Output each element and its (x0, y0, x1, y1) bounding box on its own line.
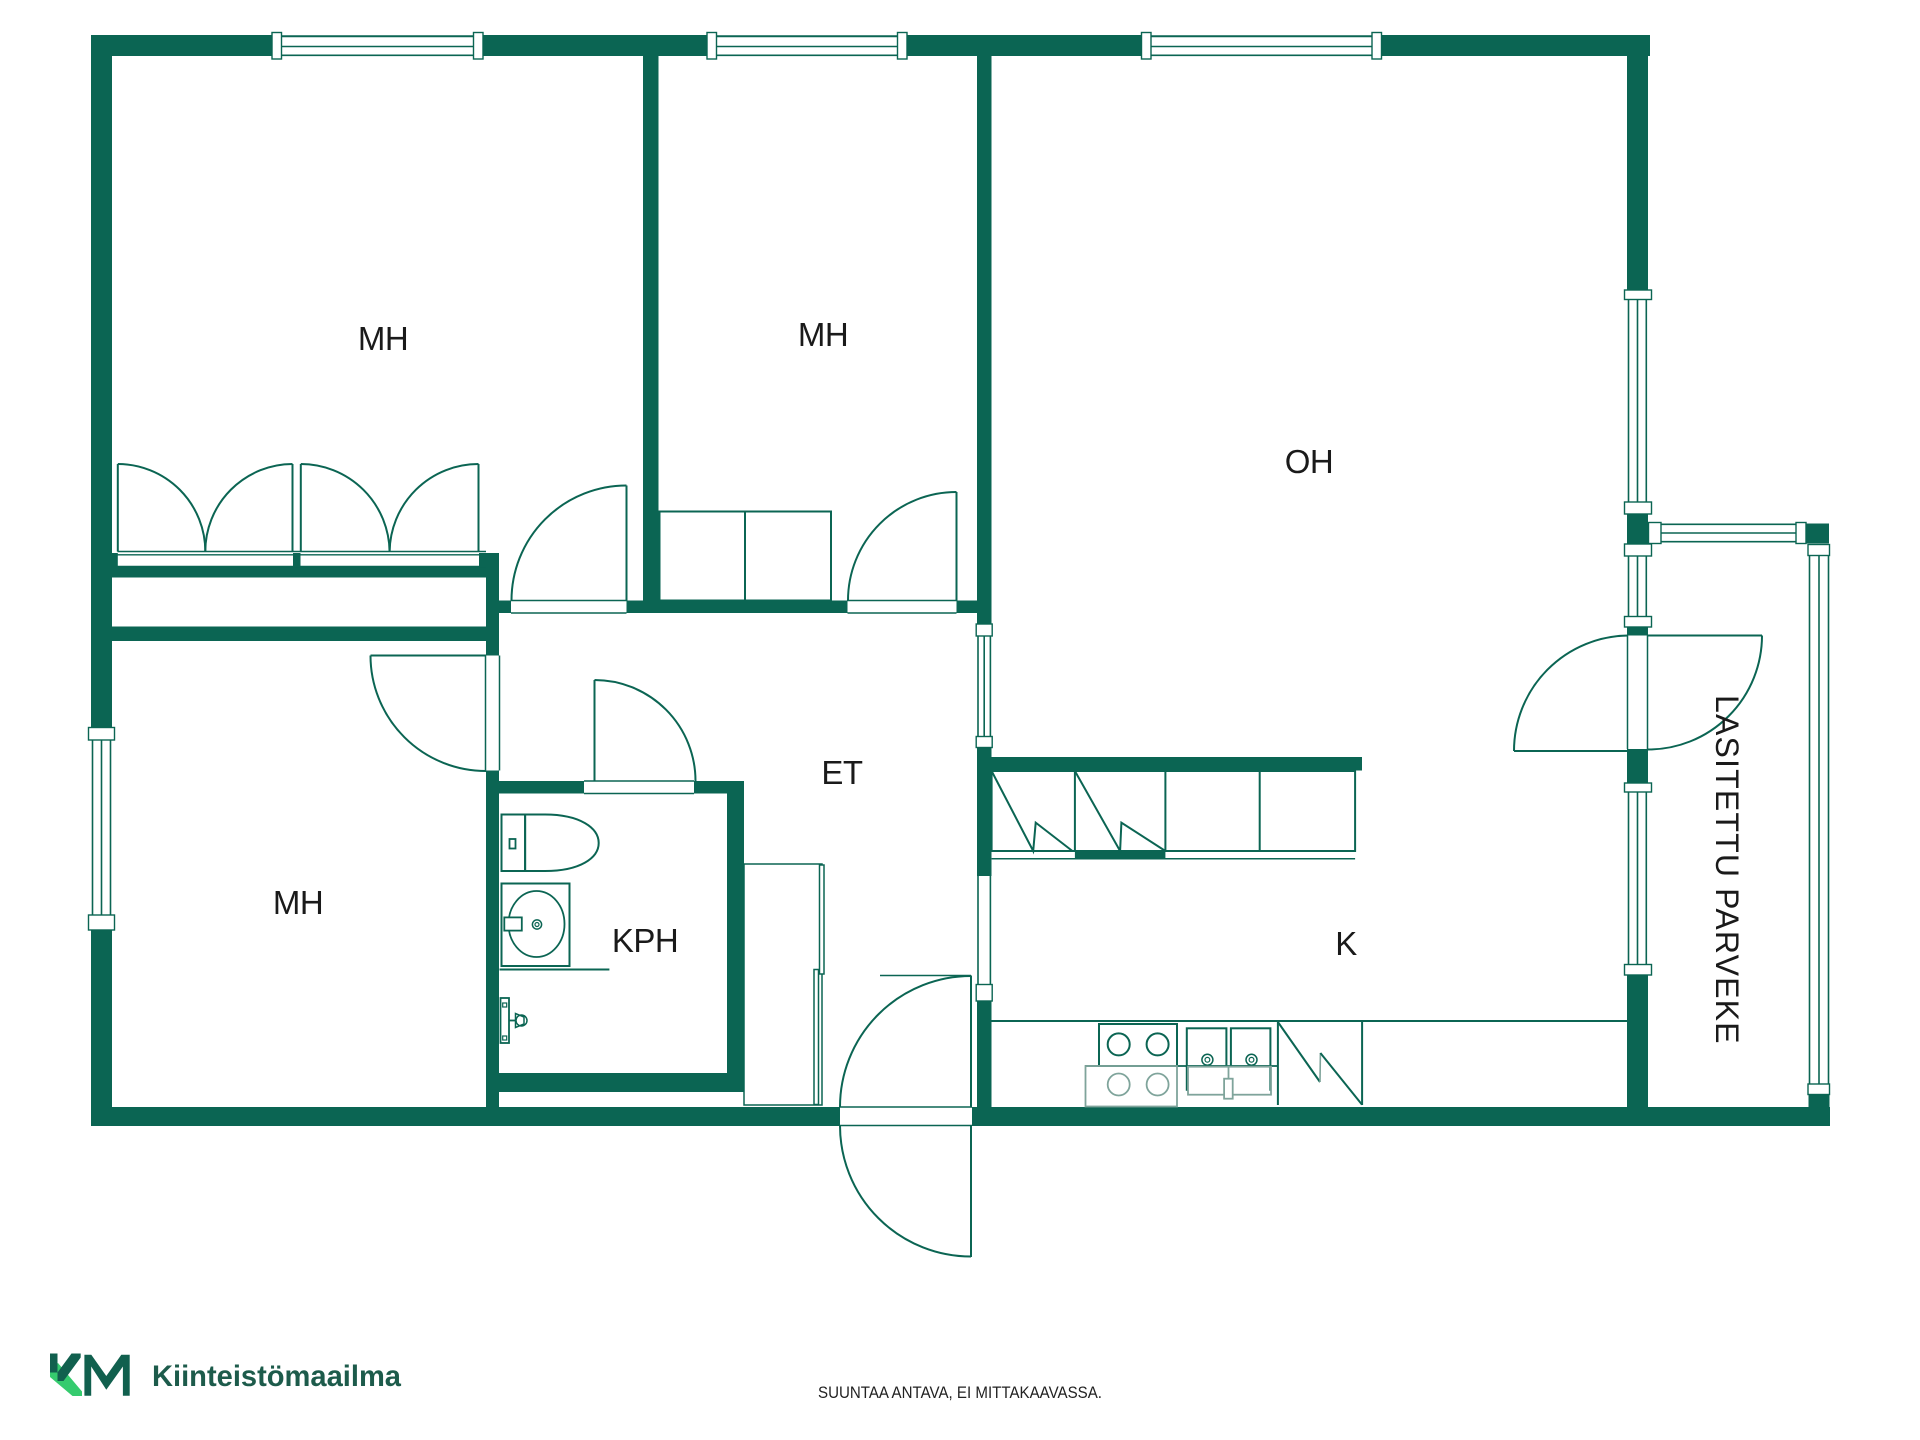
svg-text:KPH: KPH (612, 922, 678, 959)
svg-text:SUUNTAA ANTAVA, EI MITTAKAAVAS: SUUNTAA ANTAVA, EI MITTAKAAVASSA. (818, 1383, 1102, 1402)
svg-text:MH: MH (798, 316, 848, 353)
svg-text:LASITETTU PARVEKE: LASITETTU PARVEKE (1709, 695, 1745, 1043)
svg-text:MH: MH (273, 884, 323, 921)
svg-text:OH: OH (1285, 443, 1334, 480)
svg-text:ET: ET (821, 754, 863, 791)
svg-text:Kiinteistömaailma: Kiinteistömaailma (152, 1360, 401, 1393)
svg-text:K: K (1335, 925, 1357, 962)
svg-text:MH: MH (358, 320, 408, 357)
